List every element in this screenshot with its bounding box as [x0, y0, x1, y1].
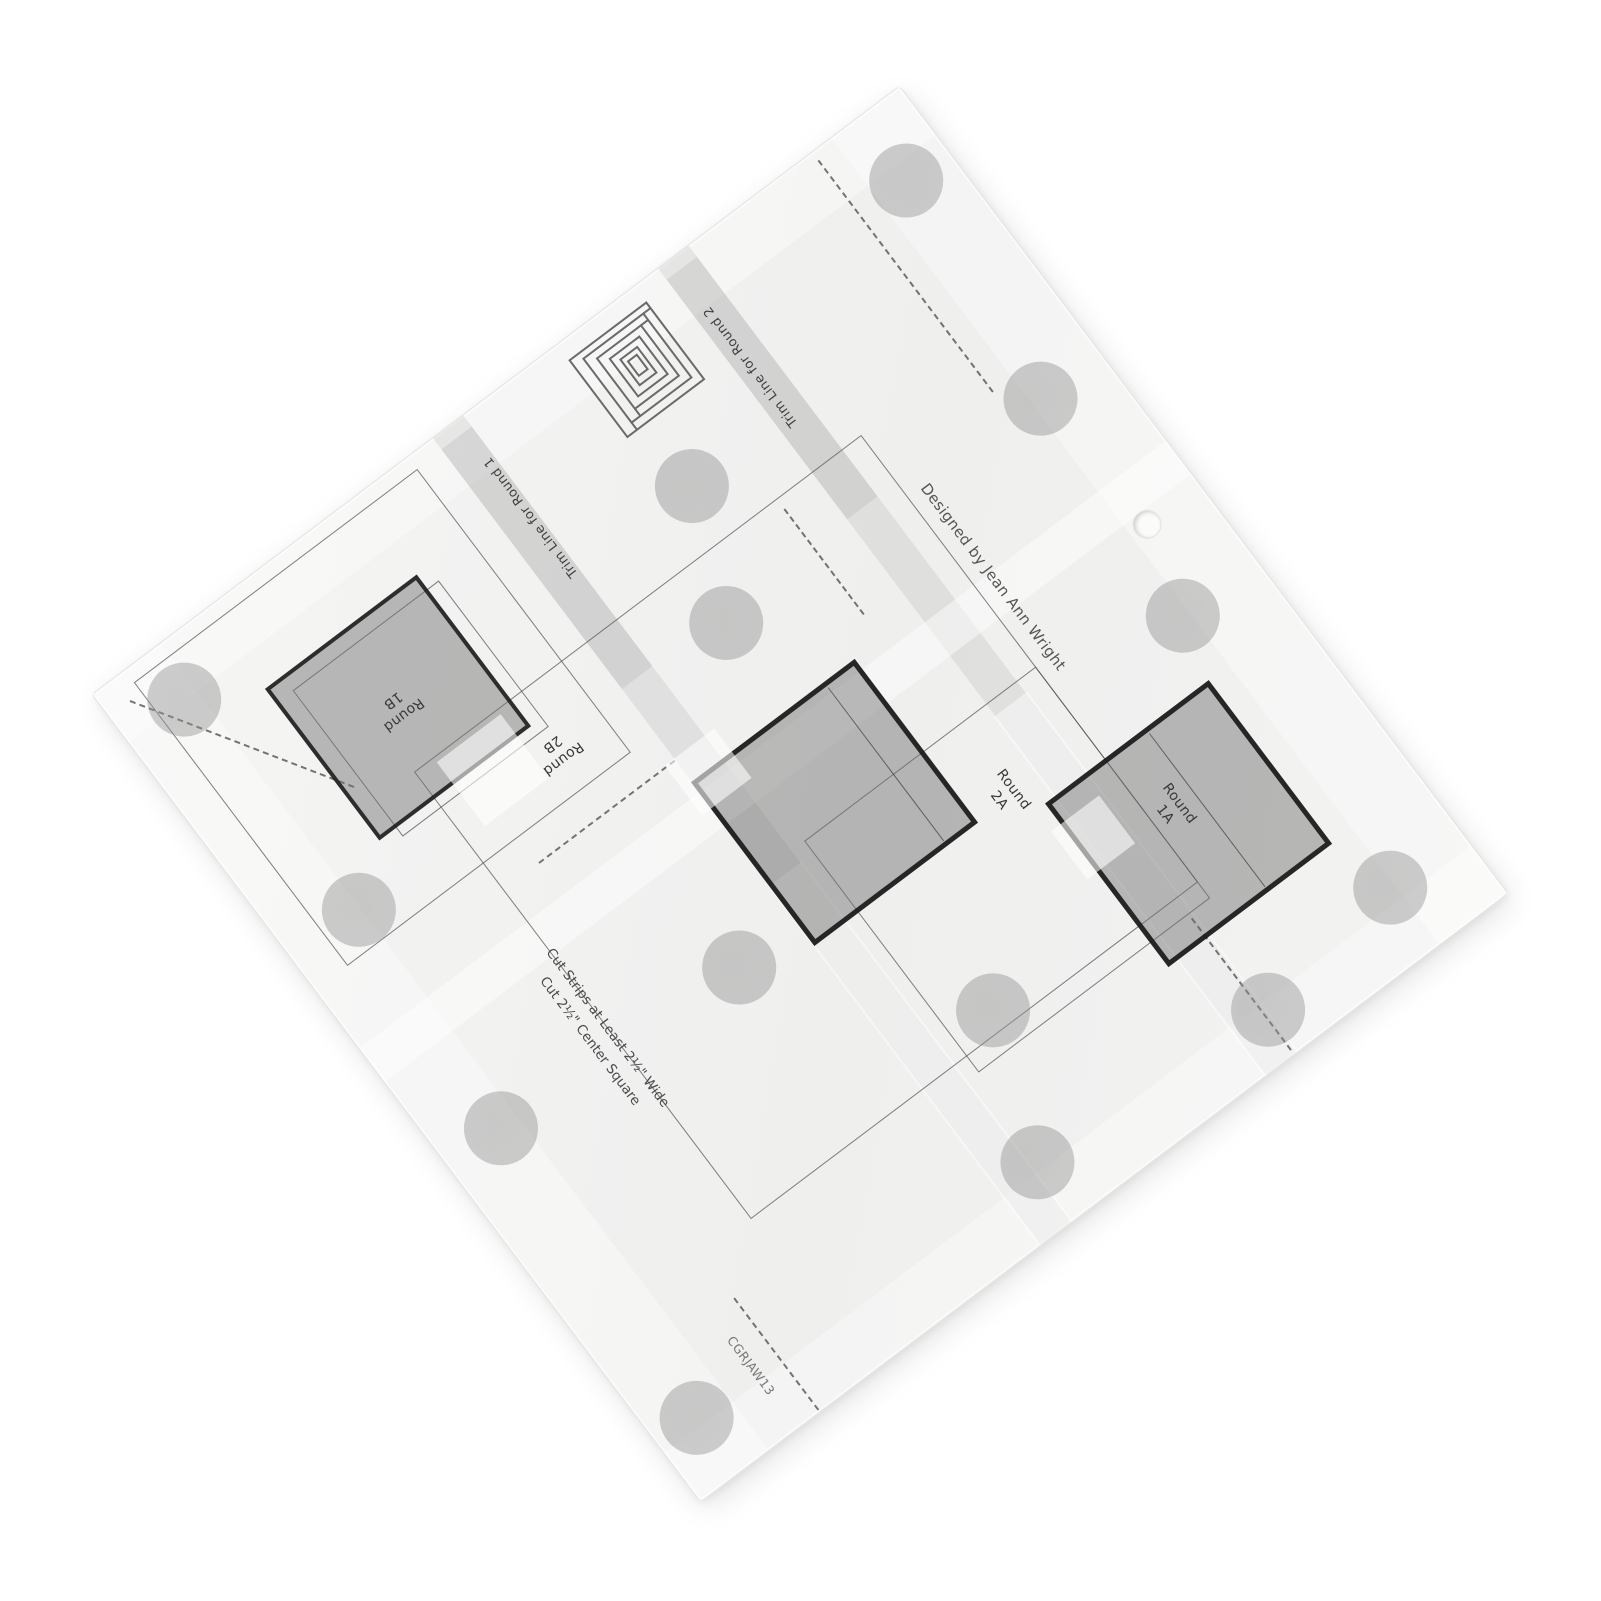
grip-dot [1216, 958, 1320, 1062]
grip-dot [986, 1110, 1090, 1214]
grip-dot [640, 434, 744, 538]
grip-dot [449, 1076, 553, 1180]
grip-dot [854, 129, 958, 233]
grip-dot [674, 571, 778, 675]
grip-dot [941, 959, 1045, 1063]
grip-dot [1338, 836, 1442, 940]
grip-dot [989, 347, 1093, 451]
product-photo-scene: Trim Line for Round 1 Trim Line for Roun… [0, 0, 1601, 1601]
grip-dot [307, 858, 411, 962]
grip-dot [1131, 564, 1235, 668]
grip-dot [645, 1366, 749, 1470]
grip-dot [132, 648, 236, 752]
acrylic-ruler-plate: Trim Line for Round 1 Trim Line for Roun… [91, 85, 1508, 1502]
grip-dot [687, 916, 791, 1020]
